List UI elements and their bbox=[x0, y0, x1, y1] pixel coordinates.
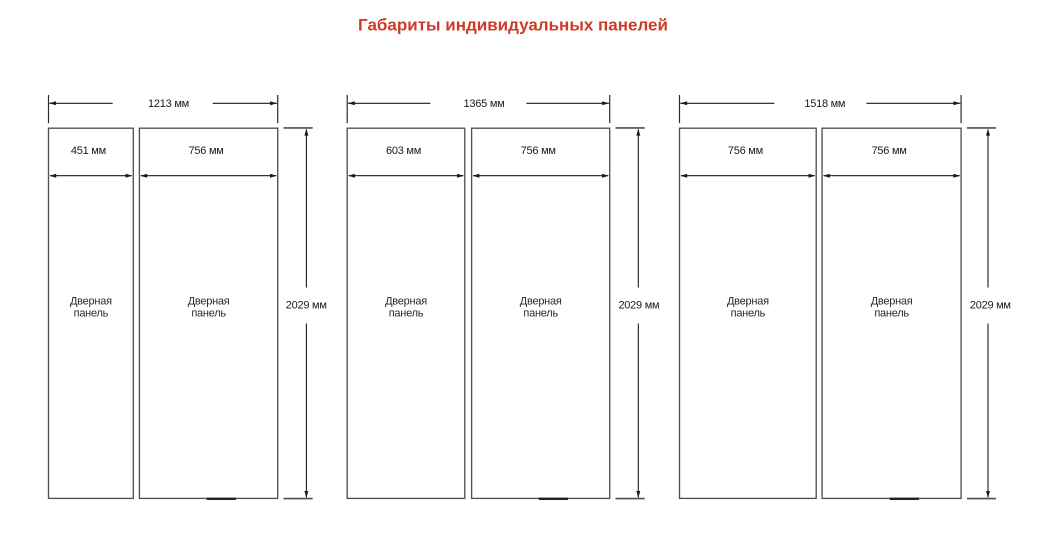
svg-text:2029 мм: 2029 мм bbox=[618, 299, 659, 311]
svg-text:панель: панель bbox=[874, 307, 909, 319]
svg-text:Дверная: Дверная bbox=[385, 295, 427, 307]
svg-text:756 мм: 756 мм bbox=[728, 145, 763, 157]
svg-text:1213 мм: 1213 мм bbox=[148, 98, 189, 110]
svg-text:панель: панель bbox=[389, 307, 424, 319]
svg-text:1518 мм: 1518 мм bbox=[804, 98, 845, 110]
svg-text:756 мм: 756 мм bbox=[872, 145, 907, 157]
svg-text:панель: панель bbox=[191, 307, 226, 319]
svg-text:Дверная: Дверная bbox=[188, 295, 230, 307]
svg-text:1365 мм: 1365 мм bbox=[464, 98, 505, 110]
svg-text:2029 мм: 2029 мм bbox=[286, 299, 327, 311]
svg-text:Дверная: Дверная bbox=[871, 295, 913, 307]
svg-text:603 мм: 603 мм bbox=[386, 145, 421, 157]
svg-text:2029 мм: 2029 мм bbox=[970, 299, 1011, 311]
svg-text:Дверная: Дверная bbox=[727, 295, 769, 307]
svg-text:756 мм: 756 мм bbox=[189, 145, 224, 157]
svg-text:Дверная: Дверная bbox=[70, 295, 112, 307]
svg-text:Габариты индивидуальных панеле: Габариты индивидуальных панелей bbox=[358, 16, 668, 35]
svg-text:756 мм: 756 мм bbox=[521, 145, 556, 157]
svg-text:панель: панель bbox=[74, 307, 109, 319]
svg-text:панель: панель bbox=[523, 307, 558, 319]
svg-text:Дверная: Дверная bbox=[520, 295, 562, 307]
svg-text:451 мм: 451 мм bbox=[71, 145, 106, 157]
svg-text:панель: панель bbox=[731, 307, 766, 319]
